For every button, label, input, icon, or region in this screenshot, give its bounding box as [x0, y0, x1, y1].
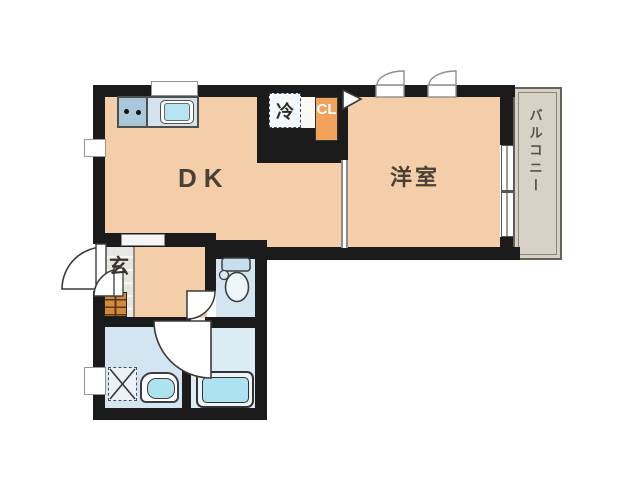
wall-lowerblock-right [255, 247, 267, 420]
wall-washroom-top [105, 317, 182, 327]
balcony-window [501, 145, 514, 237]
wall-lowerblock-bottom [93, 408, 267, 420]
westernroom-window-1-swing [377, 71, 404, 85]
wall-toilet-left [205, 259, 216, 291]
balcony-label: バルコニー [524, 108, 544, 260]
westernroom-window-2-swing [429, 71, 456, 85]
partition-dk-westernroom [341, 160, 348, 248]
bathtub [196, 371, 254, 408]
kitchen-sink [160, 100, 194, 124]
kitchen-top-window [151, 81, 198, 96]
wall-westernroom-right-lower [500, 237, 513, 260]
wash-basin [140, 372, 179, 403]
closet-label: CL [317, 101, 337, 118]
washroom-left-window [84, 367, 106, 395]
stove [119, 98, 148, 126]
wall-lower-horizontal [260, 247, 520, 260]
dk-hall-door [121, 234, 165, 246]
washing-machine-space [108, 367, 137, 401]
shoe-cabinet [104, 292, 127, 317]
hallway-floor [135, 247, 207, 318]
refrigerator-label: 冷 [276, 98, 294, 124]
dk-label: DK [178, 163, 230, 194]
western-room-label: 洋室 [390, 160, 440, 192]
closet: CL [315, 97, 338, 141]
balcony-window-divider [502, 190, 513, 193]
kitchen-sink-basin [164, 103, 190, 121]
stove-burner-icon [136, 110, 141, 115]
wall-bath-divider [182, 317, 191, 408]
stove-burner-icon [124, 109, 129, 114]
entrance-label: 玄 [103, 250, 135, 279]
wash-basin-bowl [147, 378, 175, 399]
dk-left-window [84, 139, 106, 157]
refrigerator-space: 冷 [269, 93, 301, 128]
wall-toilet-bottom [205, 317, 267, 328]
bathtub-inner [202, 377, 249, 403]
kitchen-counter [117, 96, 199, 128]
wall-closet-right [338, 85, 348, 163]
toilet-room-floor [216, 259, 255, 317]
wall-westernroom-right-upper [500, 85, 513, 145]
floor-plan: 冷 CL [0, 0, 640, 478]
